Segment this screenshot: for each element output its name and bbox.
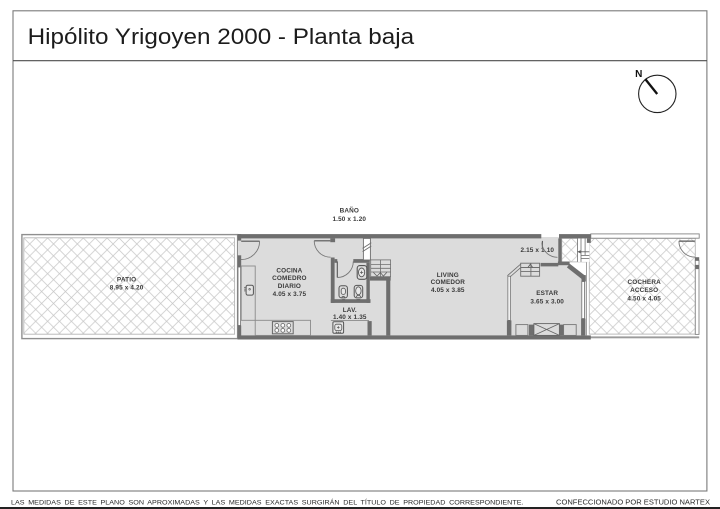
svg-text:ACCESO: ACCESO <box>630 287 658 294</box>
svg-text:4.05 x 3.75: 4.05 x 3.75 <box>273 291 307 298</box>
svg-text:COMEDOR: COMEDOR <box>431 279 466 286</box>
svg-text:LIVING: LIVING <box>437 272 459 279</box>
svg-text:1.50 x 1.20: 1.50 x 1.20 <box>332 216 366 223</box>
svg-text:DIARIO: DIARIO <box>278 283 301 290</box>
svg-text:LAV.: LAV. <box>343 307 357 314</box>
svg-text:COCINA: COCINA <box>276 268 302 275</box>
svg-text:COMEDRO: COMEDRO <box>272 275 306 282</box>
svg-text:4.05 x 3.85: 4.05 x 3.85 <box>431 287 465 294</box>
svg-text:PATIO: PATIO <box>117 276 136 283</box>
svg-text:2.15 x 1.10: 2.15 x 1.10 <box>520 247 554 254</box>
svg-text:4.50 x 4.05: 4.50 x 4.05 <box>627 295 661 302</box>
svg-text:3.65 x 3.00: 3.65 x 3.00 <box>530 298 564 305</box>
svg-text:N: N <box>635 69 642 80</box>
svg-text:Hipólito Yrigoyen 2000 - Plant: Hipólito Yrigoyen 2000 - Planta baja <box>28 24 415 49</box>
svg-text:ESTAR: ESTAR <box>536 290 558 297</box>
svg-text:CONFECCIONADO POR ESTUDIO NART: CONFECCIONADO POR ESTUDIO NARTEX <box>556 499 710 506</box>
svg-text:8.95 x 4.20: 8.95 x 4.20 <box>110 284 144 291</box>
svg-text:1.40 x 1.35: 1.40 x 1.35 <box>333 314 367 321</box>
svg-text:BAÑO: BAÑO <box>340 206 359 215</box>
svg-text:LAS MEDIDAS DE ESTE PLANO SON: LAS MEDIDAS DE ESTE PLANO SON APROXIMADA… <box>11 497 524 506</box>
svg-text:COCHERA: COCHERA <box>628 279 662 286</box>
